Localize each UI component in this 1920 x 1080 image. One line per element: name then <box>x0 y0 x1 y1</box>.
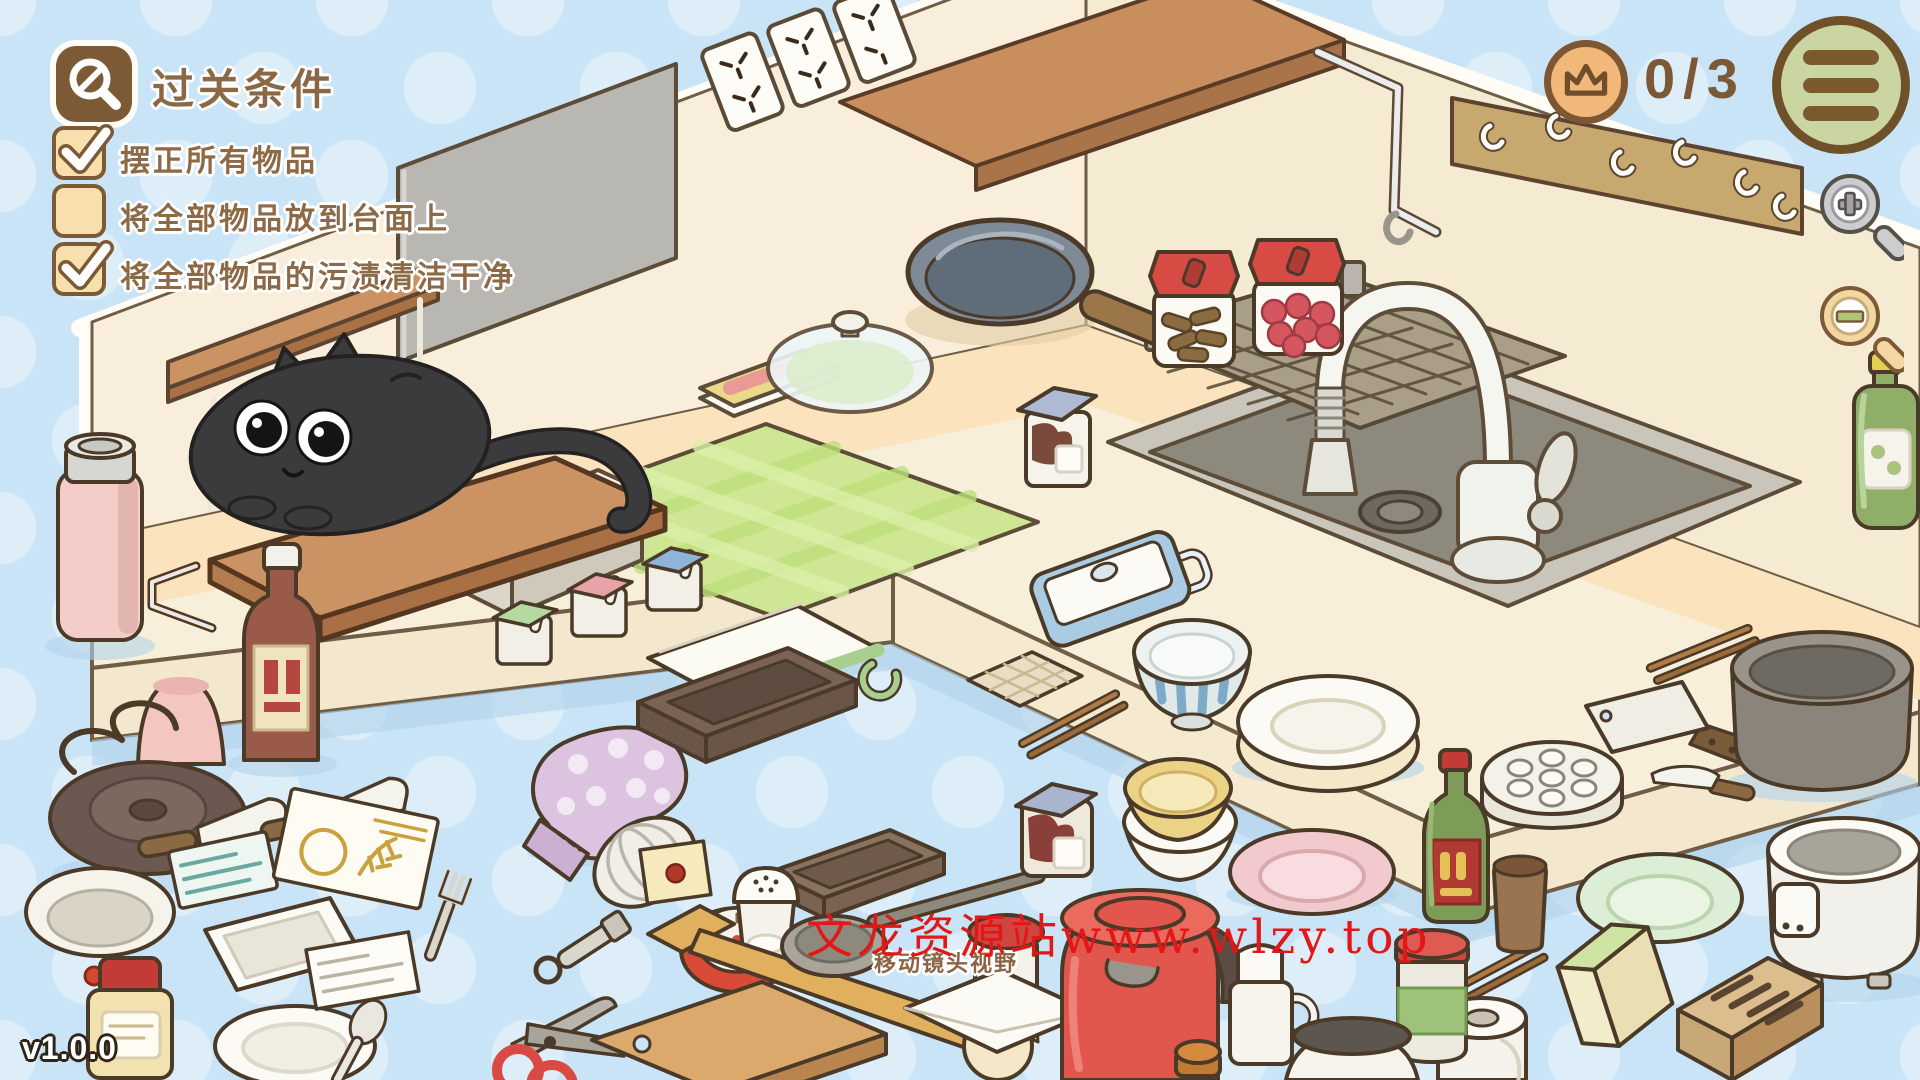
check-icon <box>50 230 116 296</box>
seasoning-box-pink[interactable] <box>568 574 632 636</box>
game-screen: 文龙资源站www.wlzy.top 移动镜头视野 过关条件 摆正所有物品 将全部… <box>0 0 1920 1080</box>
goal-panel-title: 过关条件 <box>152 56 336 117</box>
seed-packet-wheat[interactable] <box>273 788 439 909</box>
steamer-plate[interactable] <box>1482 742 1622 828</box>
goal-panel-button[interactable] <box>56 46 132 122</box>
version-label: v1.0.0 <box>22 1030 117 1067</box>
sauce-jar-blue-lid[interactable] <box>1016 784 1096 876</box>
condition-row: 将全部物品的污渍清洁干净 <box>52 242 516 296</box>
white-pot[interactable] <box>1286 1018 1418 1080</box>
knife-block[interactable] <box>1678 958 1822 1080</box>
condition-label: 将全部物品的污渍清洁干净 <box>120 242 516 296</box>
checkbox <box>52 242 106 296</box>
magnifier-minus-icon <box>1822 288 1904 375</box>
treat-jar[interactable] <box>1150 252 1238 366</box>
checkbox <box>52 126 106 180</box>
seasoning-box-blue[interactable] <box>643 548 707 610</box>
progress-badge <box>1544 40 1628 124</box>
zoom-out-button[interactable] <box>1812 280 1904 384</box>
sticky-note[interactable] <box>640 841 711 903</box>
magnifier-condition-icon <box>56 46 132 122</box>
hamburger-icon <box>1803 50 1879 65</box>
cocoa-jar[interactable] <box>1018 388 1096 486</box>
progress-count: 0/3 <box>1644 46 1746 111</box>
zoom-in-button[interactable] <box>1812 168 1904 272</box>
gray-pot[interactable] <box>1726 632 1918 802</box>
condition-row: 摆正所有物品 <box>52 126 318 180</box>
magnifier-plus-icon <box>1822 176 1904 263</box>
orange-cap[interactable] <box>1176 1041 1220 1076</box>
condition-label: 摆正所有物品 <box>120 126 318 180</box>
stacked-plates[interactable] <box>1232 676 1424 791</box>
menu-button[interactable] <box>1772 16 1910 154</box>
white-plate-and-spoon[interactable] <box>215 994 393 1080</box>
condition-label: 将全部物品放到台面上 <box>120 184 450 238</box>
brown-cup[interactable] <box>1494 856 1546 952</box>
watermark: 文龙资源站www.wlzy.top <box>806 898 1432 967</box>
check-icon <box>50 114 116 180</box>
berry-jar[interactable] <box>1250 240 1344 357</box>
seasoning-box-green[interactable] <box>493 602 557 664</box>
stacked-bowls[interactable] <box>1124 759 1236 880</box>
crown-icon <box>1554 50 1618 114</box>
